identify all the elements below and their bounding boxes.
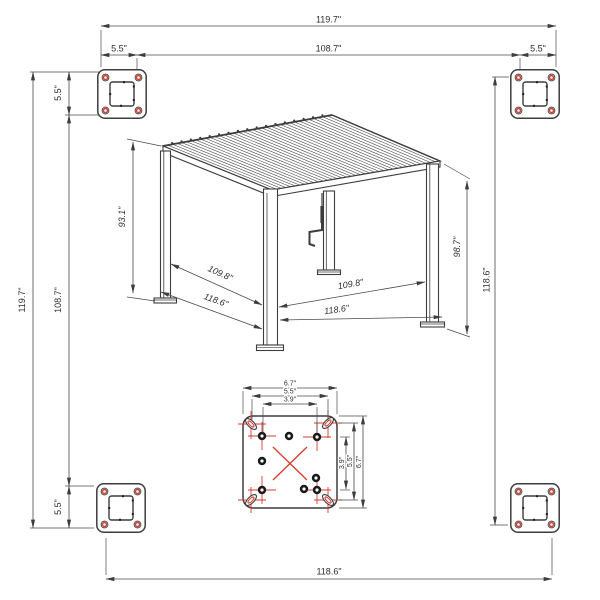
dim-height-left: 93.1"	[117, 206, 127, 228]
dim-top-inner: 108.7"	[316, 44, 342, 54]
dim-plate-width-mid: 5.5"	[284, 389, 297, 396]
crank-handle	[310, 193, 323, 246]
dim-height-right: 98.7"	[452, 236, 462, 258]
technical-drawing: 119.7" 5.5" 108.7" 5.5" 119.7" 5.5" 108.…	[0, 0, 600, 600]
mounting-plate-detail	[238, 410, 342, 513]
dim-left-plate-bottom: 5.5"	[53, 499, 63, 515]
dim-top-plate-right: 5.5"	[530, 44, 546, 54]
dim-plate-height-mid: 5.5"	[347, 454, 354, 467]
dim-plate-height-inner: 3.9"	[339, 456, 346, 469]
base-plate-top-left	[98, 70, 146, 118]
dim-bottom-total: 118.6"	[316, 567, 341, 577]
pergola-front-post	[257, 189, 284, 351]
pergola-dimension-drawing: 119.7" 5.5" 108.7" 5.5" 119.7" 5.5" 108.…	[0, 0, 600, 600]
pergola-left-post	[154, 151, 177, 303]
dim-left-inner: 108.7"	[53, 287, 63, 313]
dim-span-right-outer: 118.6"	[323, 303, 350, 317]
louvered-roof	[163, 114, 440, 196]
dim-right-total: 118.6"	[482, 267, 492, 292]
pergola-right-post	[421, 164, 445, 327]
dim-span-left-inner: 109.8"	[206, 263, 234, 283]
dim-plate-height-outer: 6.7"	[356, 455, 363, 468]
dim-top-plate-left: 5.5"	[111, 44, 127, 54]
dim-top-total: 119.7"	[316, 15, 341, 25]
base-plate-bottom-left	[97, 484, 145, 532]
dim-left-total: 119.7"	[17, 287, 27, 312]
base-plate-bottom-right	[511, 484, 559, 532]
pergola-drawing	[154, 114, 445, 350]
dim-span-left-outer: 118.6"	[203, 291, 231, 309]
dim-left-plate-top: 5.5"	[53, 85, 63, 101]
pergola-back-post	[318, 191, 341, 275]
base-plate-top-right	[511, 70, 559, 118]
dim-span-right-inner: 109.8"	[337, 277, 365, 291]
dim-plate-width-inner: 3.9"	[284, 397, 297, 404]
dim-plate-width-outer: 6.7"	[284, 381, 297, 388]
